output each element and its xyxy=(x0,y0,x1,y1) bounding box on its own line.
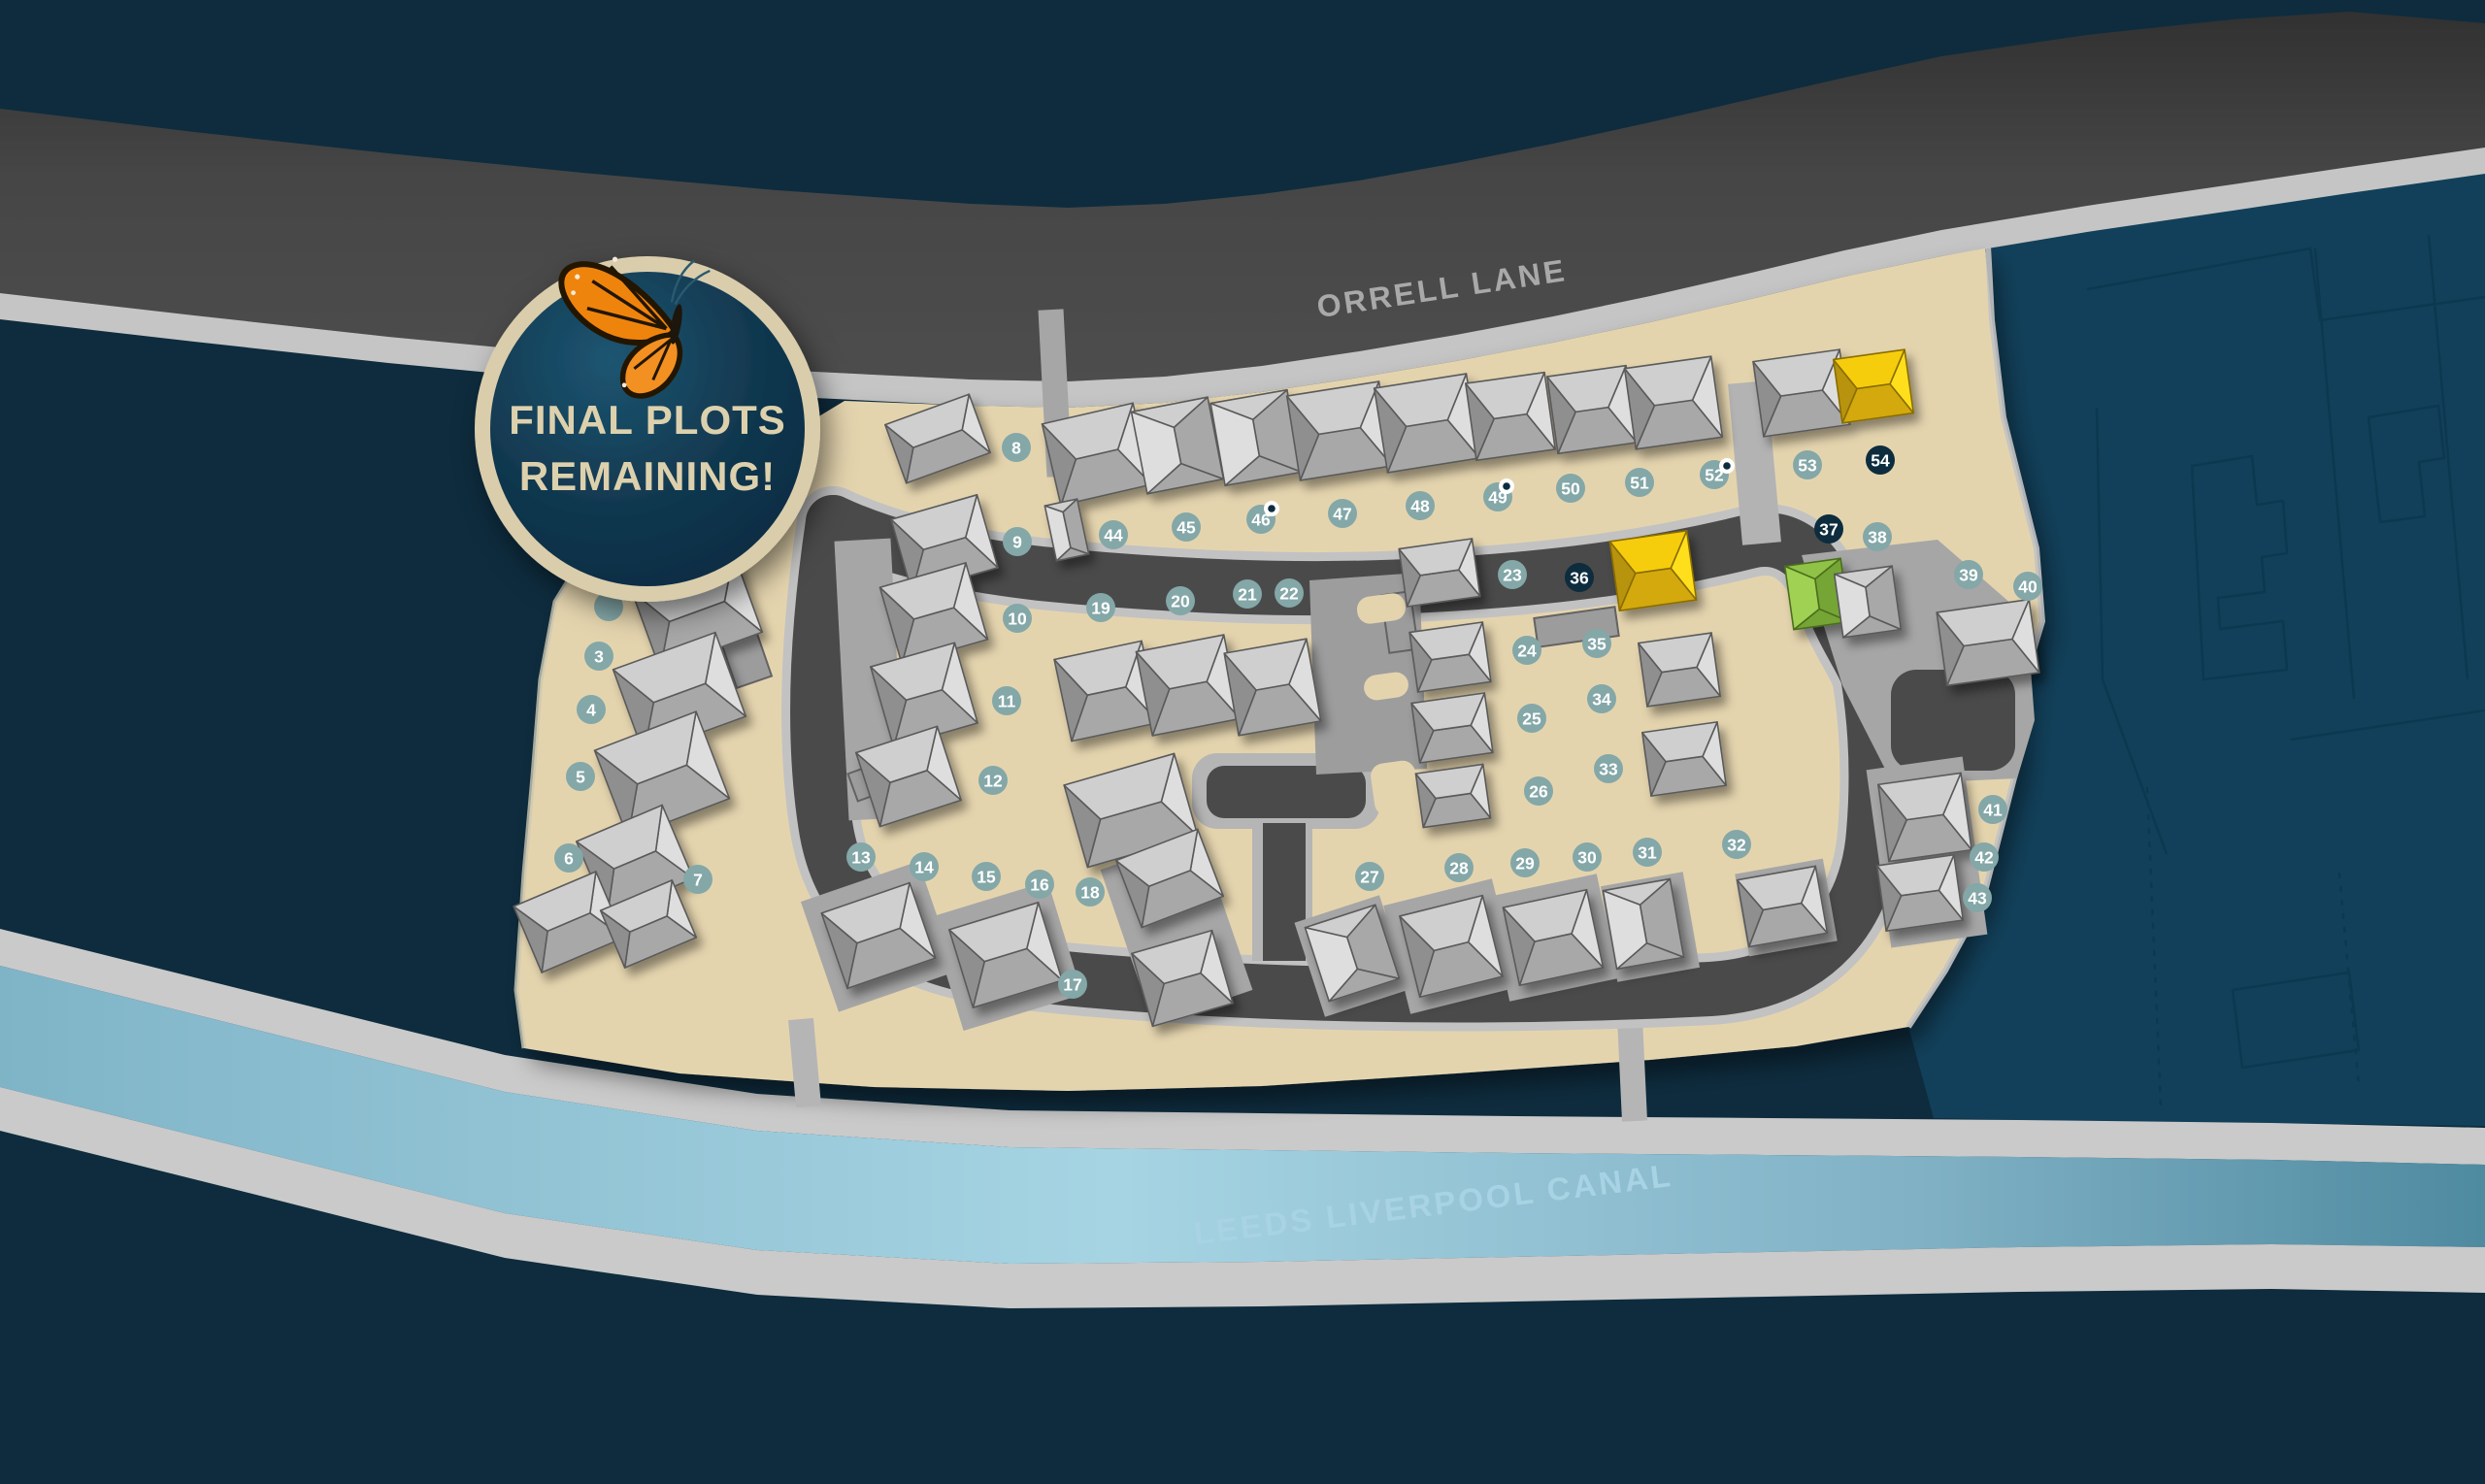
plot-number: 47 xyxy=(1333,504,1351,523)
plot-number: 42 xyxy=(1974,847,1994,867)
plot-number: 43 xyxy=(1968,888,1987,907)
plot-number: 16 xyxy=(1030,874,1049,894)
plot-number: 35 xyxy=(1587,634,1607,653)
plot-34-marker[interactable]: 34 xyxy=(1587,684,1616,713)
house xyxy=(1877,855,1964,931)
plot-number: 25 xyxy=(1522,709,1541,728)
plot-31-marker[interactable]: 31 xyxy=(1633,838,1662,867)
plot-number: 6 xyxy=(564,848,574,868)
badge-line-2: REMAINING! xyxy=(519,453,776,499)
house xyxy=(1835,566,1902,638)
plot-number: 7 xyxy=(693,870,703,889)
plot-53-marker[interactable]: 53 xyxy=(1793,450,1822,479)
plot-number: 15 xyxy=(977,867,996,886)
plot-number: 22 xyxy=(1279,583,1299,603)
plot-9-marker[interactable]: 9 xyxy=(1003,527,1032,556)
house xyxy=(1132,397,1224,494)
plot-number: 54 xyxy=(1871,450,1890,470)
plot-22-marker[interactable]: 22 xyxy=(1275,578,1304,608)
plot-25-marker[interactable]: 25 xyxy=(1517,704,1546,733)
planting-island xyxy=(1369,759,1420,817)
plot-7-marker[interactable]: 7 xyxy=(683,865,712,894)
plot-number: 28 xyxy=(1449,858,1469,877)
plot-50-marker[interactable]: 50 xyxy=(1556,474,1585,503)
house xyxy=(1409,622,1491,692)
house xyxy=(1466,373,1555,461)
plot-41-marker[interactable]: 41 xyxy=(1978,795,2007,824)
house xyxy=(1503,890,1603,986)
plot-45-marker[interactable]: 45 xyxy=(1172,512,1201,542)
plot-54-marker[interactable]: 54 xyxy=(1866,445,1895,475)
site-plan-page: 3456789101112131415161718192021222324252… xyxy=(0,0,2485,1484)
badge-line-1: FINAL PLOTS xyxy=(509,397,786,443)
plot-number: 24 xyxy=(1517,641,1537,660)
plot-number: 23 xyxy=(1503,565,1522,584)
house xyxy=(1224,639,1321,736)
poi-dot[interactable] xyxy=(1719,458,1735,474)
plot-21-marker[interactable]: 21 xyxy=(1233,579,1262,609)
culdesac-head xyxy=(1207,766,1366,818)
plot-29-marker[interactable]: 29 xyxy=(1510,848,1540,877)
plot-number: 50 xyxy=(1561,478,1580,498)
house xyxy=(1136,635,1240,736)
plot-number: 32 xyxy=(1727,835,1746,854)
plot-47-marker[interactable]: 47 xyxy=(1328,499,1357,528)
plot-17-marker[interactable]: 17 xyxy=(1058,970,1087,999)
plot-11-marker[interactable]: 11 xyxy=(992,686,1021,715)
plot-number: 51 xyxy=(1630,473,1649,492)
plot-number: 53 xyxy=(1798,455,1817,475)
plot-number: 21 xyxy=(1238,584,1257,604)
plot-5-marker[interactable]: 5 xyxy=(566,762,595,791)
plot-number: 3 xyxy=(594,646,604,666)
plot-number: 30 xyxy=(1577,847,1597,867)
plot-number: 4 xyxy=(586,700,596,719)
plot-number: 45 xyxy=(1176,517,1196,537)
plot-number: 26 xyxy=(1529,781,1548,801)
plot-number: 39 xyxy=(1959,565,1978,584)
plot-18-marker[interactable]: 18 xyxy=(1076,877,1105,907)
plot-35-marker[interactable]: 35 xyxy=(1582,629,1611,658)
plot-16-marker[interactable]: 16 xyxy=(1025,870,1054,899)
house xyxy=(1547,366,1637,454)
house xyxy=(1375,374,1480,473)
plot-number: 41 xyxy=(1983,800,2003,819)
plot-36-marker[interactable]: 36 xyxy=(1565,563,1594,592)
plot-number: 8 xyxy=(1011,438,1021,457)
plot-37-marker[interactable]: 37 xyxy=(1814,514,1843,544)
plot-number: 36 xyxy=(1570,568,1589,587)
plot-42-marker[interactable]: 42 xyxy=(1970,842,1999,872)
plot-27-marker[interactable]: 27 xyxy=(1355,862,1384,891)
plot-13-marker[interactable]: 13 xyxy=(846,842,876,872)
plot-32-marker[interactable]: 32 xyxy=(1722,830,1751,859)
plot-33-marker[interactable]: 33 xyxy=(1594,754,1623,783)
house xyxy=(1738,866,1828,946)
plot-26-marker[interactable]: 26 xyxy=(1524,776,1553,806)
plot-48-marker[interactable]: 48 xyxy=(1406,491,1435,520)
plot-3-marker[interactable]: 3 xyxy=(584,642,613,671)
plot-number: 44 xyxy=(1104,525,1123,544)
plot-19-marker[interactable]: 19 xyxy=(1086,593,1115,622)
plot-number: 29 xyxy=(1515,853,1535,873)
plot-39-marker[interactable]: 39 xyxy=(1954,560,1983,589)
plot-number: 33 xyxy=(1599,759,1618,778)
plot-4-marker[interactable]: 4 xyxy=(577,695,606,724)
plot-number: 37 xyxy=(1819,519,1838,539)
plot-number: 13 xyxy=(851,847,871,867)
plot-12-marker[interactable]: 12 xyxy=(978,766,1008,795)
house xyxy=(1415,764,1490,827)
plot-number: 14 xyxy=(914,857,934,876)
poi-dot[interactable] xyxy=(1499,478,1514,494)
plot-6-marker[interactable]: 6 xyxy=(554,843,583,873)
plot-44-marker[interactable]: 44 xyxy=(1099,520,1128,549)
plot-14-marker[interactable]: 14 xyxy=(910,852,939,881)
plot-30-marker[interactable]: 30 xyxy=(1573,842,1602,872)
plot-number: 40 xyxy=(2018,577,2038,596)
house xyxy=(1603,879,1683,970)
plot-number: 20 xyxy=(1171,591,1190,610)
plot-24-marker[interactable]: 24 xyxy=(1512,636,1541,665)
plot-number: 18 xyxy=(1080,882,1100,902)
plot-51-marker[interactable]: 51 xyxy=(1625,468,1654,497)
house xyxy=(1639,633,1720,707)
plot-number: 9 xyxy=(1012,532,1022,551)
plot-23-marker[interactable]: 23 xyxy=(1498,560,1527,589)
showhome-house xyxy=(1834,349,1913,423)
house xyxy=(1625,356,1723,449)
house xyxy=(1411,693,1493,763)
site-plan: 3456789101112131415161718192021222324252… xyxy=(0,0,2485,1484)
plot-number: 27 xyxy=(1360,867,1378,886)
plot-number: 10 xyxy=(1008,609,1027,628)
house xyxy=(1399,539,1480,607)
plot-43-marker[interactable]: 43 xyxy=(1963,883,1992,912)
plot-number: 12 xyxy=(983,771,1003,790)
poi-dot[interactable] xyxy=(1264,501,1279,516)
plot-number: 34 xyxy=(1592,689,1611,709)
house xyxy=(1642,722,1726,796)
plot-number: 38 xyxy=(1868,527,1887,546)
showhome-house xyxy=(1609,531,1696,610)
plot-10-marker[interactable]: 10 xyxy=(1003,604,1032,633)
plot-40-marker[interactable]: 40 xyxy=(2013,572,2042,601)
plot-number: 31 xyxy=(1638,842,1657,862)
plot-38-marker[interactable]: 38 xyxy=(1863,522,1892,551)
plot-15-marker[interactable]: 15 xyxy=(972,862,1001,891)
plot-number: 17 xyxy=(1063,974,1081,994)
plot-number: 48 xyxy=(1410,496,1430,515)
culdesac-stem xyxy=(1263,823,1306,961)
house xyxy=(1878,773,1971,861)
plot-number: 11 xyxy=(998,691,1016,710)
plot-20-marker[interactable]: 20 xyxy=(1166,586,1195,615)
plot-number: 5 xyxy=(576,767,585,786)
plot-8-marker[interactable]: 8 xyxy=(1002,433,1031,462)
house xyxy=(1937,600,2039,686)
plot-number: 19 xyxy=(1091,598,1110,617)
plot-28-marker[interactable]: 28 xyxy=(1444,853,1474,882)
